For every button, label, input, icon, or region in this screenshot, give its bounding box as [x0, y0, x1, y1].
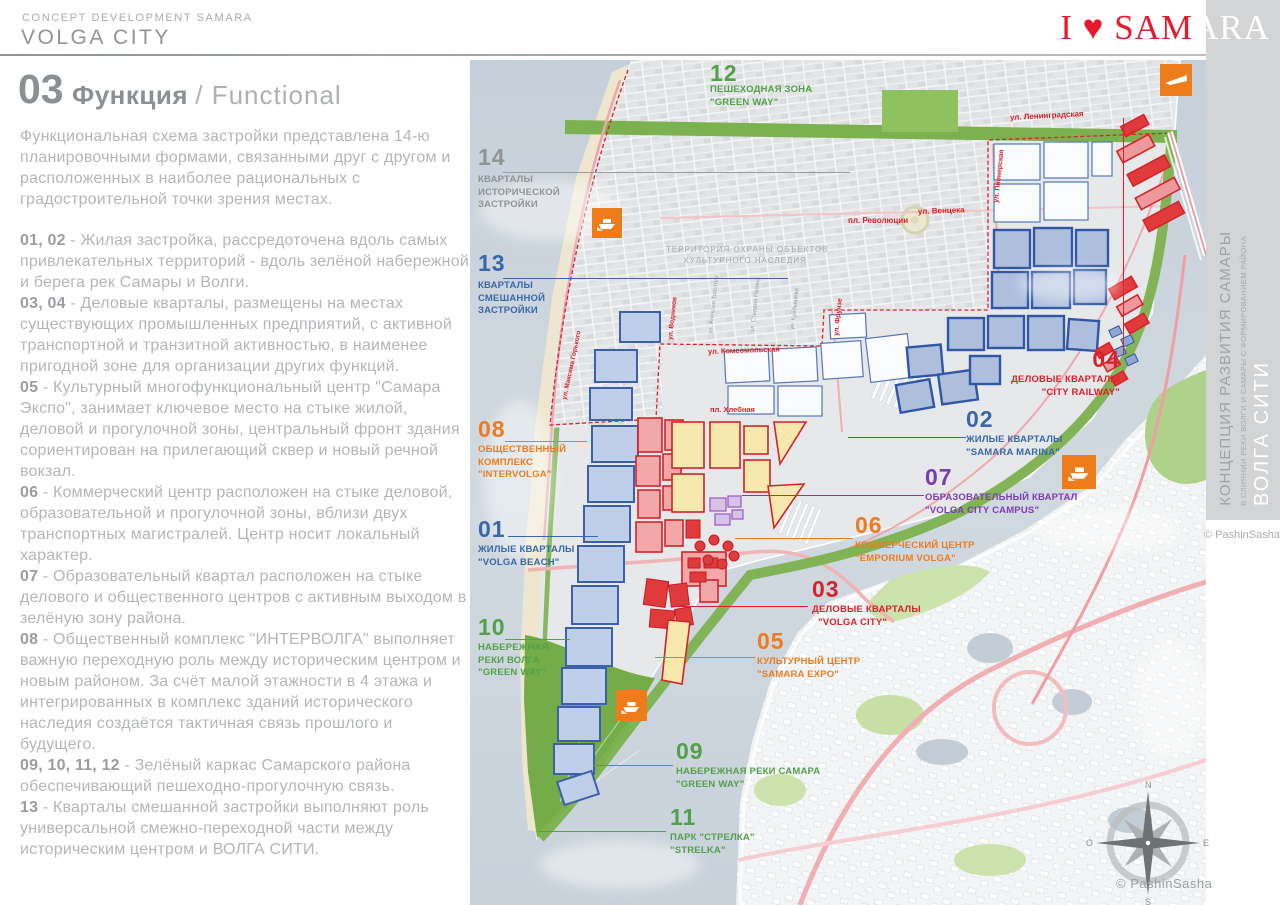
callout-14-historic-blocks: 14 КВАРТАЛЫ ИСТОРИЧЕСКОЙ ЗАСТРОЙКИ	[478, 146, 560, 212]
callout-13-mixed-blocks: 13 КВАРТАЛЫ СМЕШАННОЙ ЗАСТРОЙКИ	[478, 252, 545, 318]
callout-07-leader-line	[742, 495, 924, 496]
callout-06-leader-line	[735, 538, 853, 539]
compass-west-label: O	[1086, 838, 1093, 848]
marina-port-icon	[1062, 455, 1096, 489]
callout-09-samara-embankment: 09 НАБЕРЕЖНАЯ РЕКИ САМАРА "GREEN WAY"	[676, 740, 820, 791]
callout-03-volga-city: 03 ДЕЛОВЫЕ КВАРТАЛЫ "VOLGA CITY"	[812, 578, 921, 629]
street-revolutsii: пл. Революции	[848, 216, 908, 225]
paragraph-06: 06 - Коммерческий центр расположен на ст…	[20, 482, 470, 566]
paragraph-13: 13 - Кварталы смешанной застройки выполн…	[20, 797, 470, 860]
logo-red-part: I ♥ SAM	[1060, 8, 1193, 47]
street-khlebnaya: пл. Хлебная	[710, 405, 755, 414]
sidebar-city-name: ВОЛГА СИТИ	[1251, 361, 1274, 506]
callout-01-volga-beach: 01 ЖИЛЫЕ КВАРТАЛЫ "VOLGA BEACH"	[478, 518, 575, 569]
paragraph-07: 07 - Образовательный квартал расположен …	[20, 566, 470, 629]
callout-05-leader-line	[655, 657, 755, 658]
paragraph-08: 08 - Общественный комплекс "ИНТЕРВОЛГА" …	[20, 629, 470, 755]
sidebar-title: КОНЦЕПЦИЯ РАЗВИТИЯ САМАРЫ	[1217, 231, 1234, 506]
callout-06-emporium-volga: 06 КОММЕРЧЕСКИЙ ЦЕНТР "EMPORIUM VOLGA"	[855, 514, 975, 565]
i-love-samara-logo: I ♥ SAMARA	[1060, 8, 1270, 48]
page: CONCEPT DEVELOPMENT SAMARA VOLGA CITY I …	[0, 0, 1280, 905]
south-port-icon	[616, 690, 647, 721]
callout-05-samara-expo: 05 КУЛЬТУРНЫЙ ЦЕНТР "SAMARA EXPO"	[757, 630, 860, 681]
compass-east-label: E	[1203, 838, 1209, 848]
sidebar-subtitle: В СЛИЯНИИ РЕКИ ВОЛГИ И САМАРЫ С ФОРМИРОВ…	[1239, 236, 1248, 506]
logo-white-part: ARA	[1193, 8, 1270, 47]
header-kicker: CONCEPT DEVELOPMENT SAMARA	[22, 12, 253, 24]
body-text-column: Функциональная схема застройки представл…	[20, 126, 470, 860]
paragraph-09-12: 09, 10, 11, 12 - Зелёный каркас Самарско…	[20, 755, 470, 797]
callout-07-volga-city-campus: 07 ОБРАЗОВАТЕЛЬНЫЙ КВАРТАЛ "VOLGA CITY C…	[925, 466, 1078, 517]
callout-10-volga-embankment: 10 НАБЕРЕЖНАЯ РЕКИ ВОЛГА "GREEN WAY"	[478, 616, 549, 680]
section-number: 03	[18, 66, 64, 113]
street-venceka: ул. Венцека	[918, 205, 966, 216]
paragraph-05: 05 - Культурный многофункциональный цент…	[20, 377, 470, 482]
protected-area-label-2: КУЛЬТУРНОГО НАСЛЕДИЯ	[684, 256, 807, 265]
callout-13-leader-line	[503, 278, 788, 279]
callout-11-strelka-park: 11 ПАРК "СТРЕЛКА" "STRELKA"	[670, 806, 755, 857]
callout-09-leader-line	[593, 765, 673, 766]
callout-04-leader-line	[1123, 118, 1124, 354]
callout-02-leader-line	[848, 437, 966, 438]
section-title: Функция / Functional	[72, 80, 342, 111]
callout-04-city-railway: 04 ДЕЛОВЫЕ КВАРТАЛЫ "CITY RAILWAY"	[970, 348, 1120, 399]
intro-paragraph: Функциональная схема застройки представл…	[20, 126, 470, 210]
protected-area-label-1: ТЕРРИТОРИЯ ОХРАНЫ ОБЪЕКТОВ	[666, 245, 829, 254]
hydrofoil-icon	[1160, 64, 1192, 96]
author-credit-side: © PashinSasha	[1204, 529, 1280, 541]
document-title: VOLGA CITY	[21, 26, 171, 50]
paragraph-03-04: 03, 04 - Деловые кварталы, размещены на …	[20, 293, 470, 377]
river-port-icon	[592, 208, 622, 238]
paragraph-01-02: 01, 02 - Жилая застройка, рассредоточена…	[20, 230, 470, 293]
callout-03-leader-line	[672, 606, 808, 607]
callout-11-leader-line	[538, 831, 666, 832]
callout-02-samara-marina: 02 ЖИЛЫЕ КВАРТАЛЫ "SAMARA MARINA"	[966, 408, 1063, 459]
city-park-square	[882, 90, 958, 132]
author-credit-map: © PashinSasha	[1116, 876, 1212, 891]
callout-12-pedestrian-zone: 12 ПЕШЕХОДНАЯ ЗОНА "GREEN WAY"	[710, 62, 812, 109]
compass-south-label: S	[1145, 897, 1151, 905]
section-title-ru: Функция	[72, 80, 188, 110]
header-divider	[0, 54, 1206, 56]
compass-north-label: N	[1145, 780, 1152, 790]
callout-08-intervolga: 08 ОБЩЕСТВЕННЫЙ КОМПЛЕКС "INTERVOLGA"	[478, 418, 566, 482]
right-sidebar-band: КОНЦЕПЦИЯ РАЗВИТИЯ САМАРЫ В СЛИЯНИИ РЕКИ…	[1206, 0, 1280, 520]
section-title-en: / Functional	[195, 80, 341, 110]
